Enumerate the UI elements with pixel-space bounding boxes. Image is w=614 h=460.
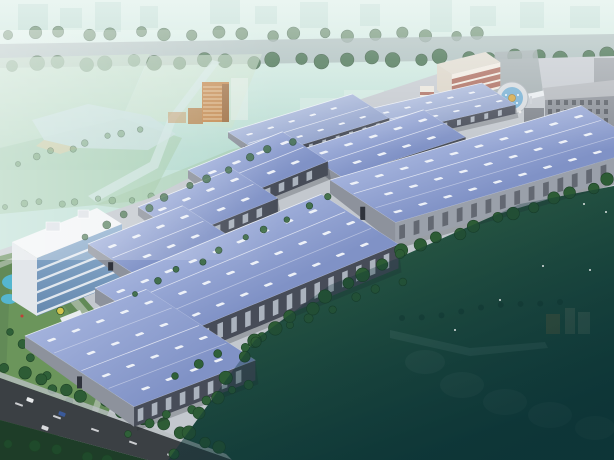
warehouse-window-strip [194,386,200,401]
garden-red-speck [21,315,24,318]
warehouse-window-strip [231,316,237,333]
warehouse-window-strip [287,293,293,310]
warehouse-window-strip [486,198,492,213]
warehouse-window-strip [543,181,549,196]
warehouse-window-strip [166,396,172,411]
warehouse-window-strip [399,224,405,239]
bird-dot [589,269,591,271]
left-haze-overlay [0,30,280,260]
bird-dot [583,203,585,205]
warehouse-end-door [77,376,82,388]
warehouse-window-strip [152,402,158,417]
warehouse-window-strip [273,299,279,316]
warehouse-end-door [360,207,365,220]
warehouse-window-strip [529,186,535,201]
warehouse-window-strip [208,380,214,395]
warehouse-window-strip [259,305,265,322]
warehouse-window-strip [500,194,506,209]
warehouse-window-strip [514,190,520,205]
warehouse-window-strip [457,207,463,222]
warehouse-window-strip [428,216,434,231]
warehouse-window-strip [557,177,563,192]
bird-dot [499,299,501,301]
warehouse-window-strip [572,173,578,188]
warehouse-window-strip [414,220,420,235]
warehouse-window-strip [442,211,448,226]
scene-canvas [0,0,614,460]
bird-dot [542,265,544,267]
bird-dot [454,329,456,331]
warehouse-window-strip [586,169,592,184]
warehouse-window-strip [301,287,307,304]
industrial-park-aerial-rendering [0,0,614,460]
warehouse-window-strip [180,391,186,406]
warehouse-window-strip [138,407,144,422]
warehouse-window-strip [245,310,251,327]
bird-dot [605,211,607,213]
warehouse-end-door [108,262,113,270]
warehouse-window-strip [471,203,477,218]
